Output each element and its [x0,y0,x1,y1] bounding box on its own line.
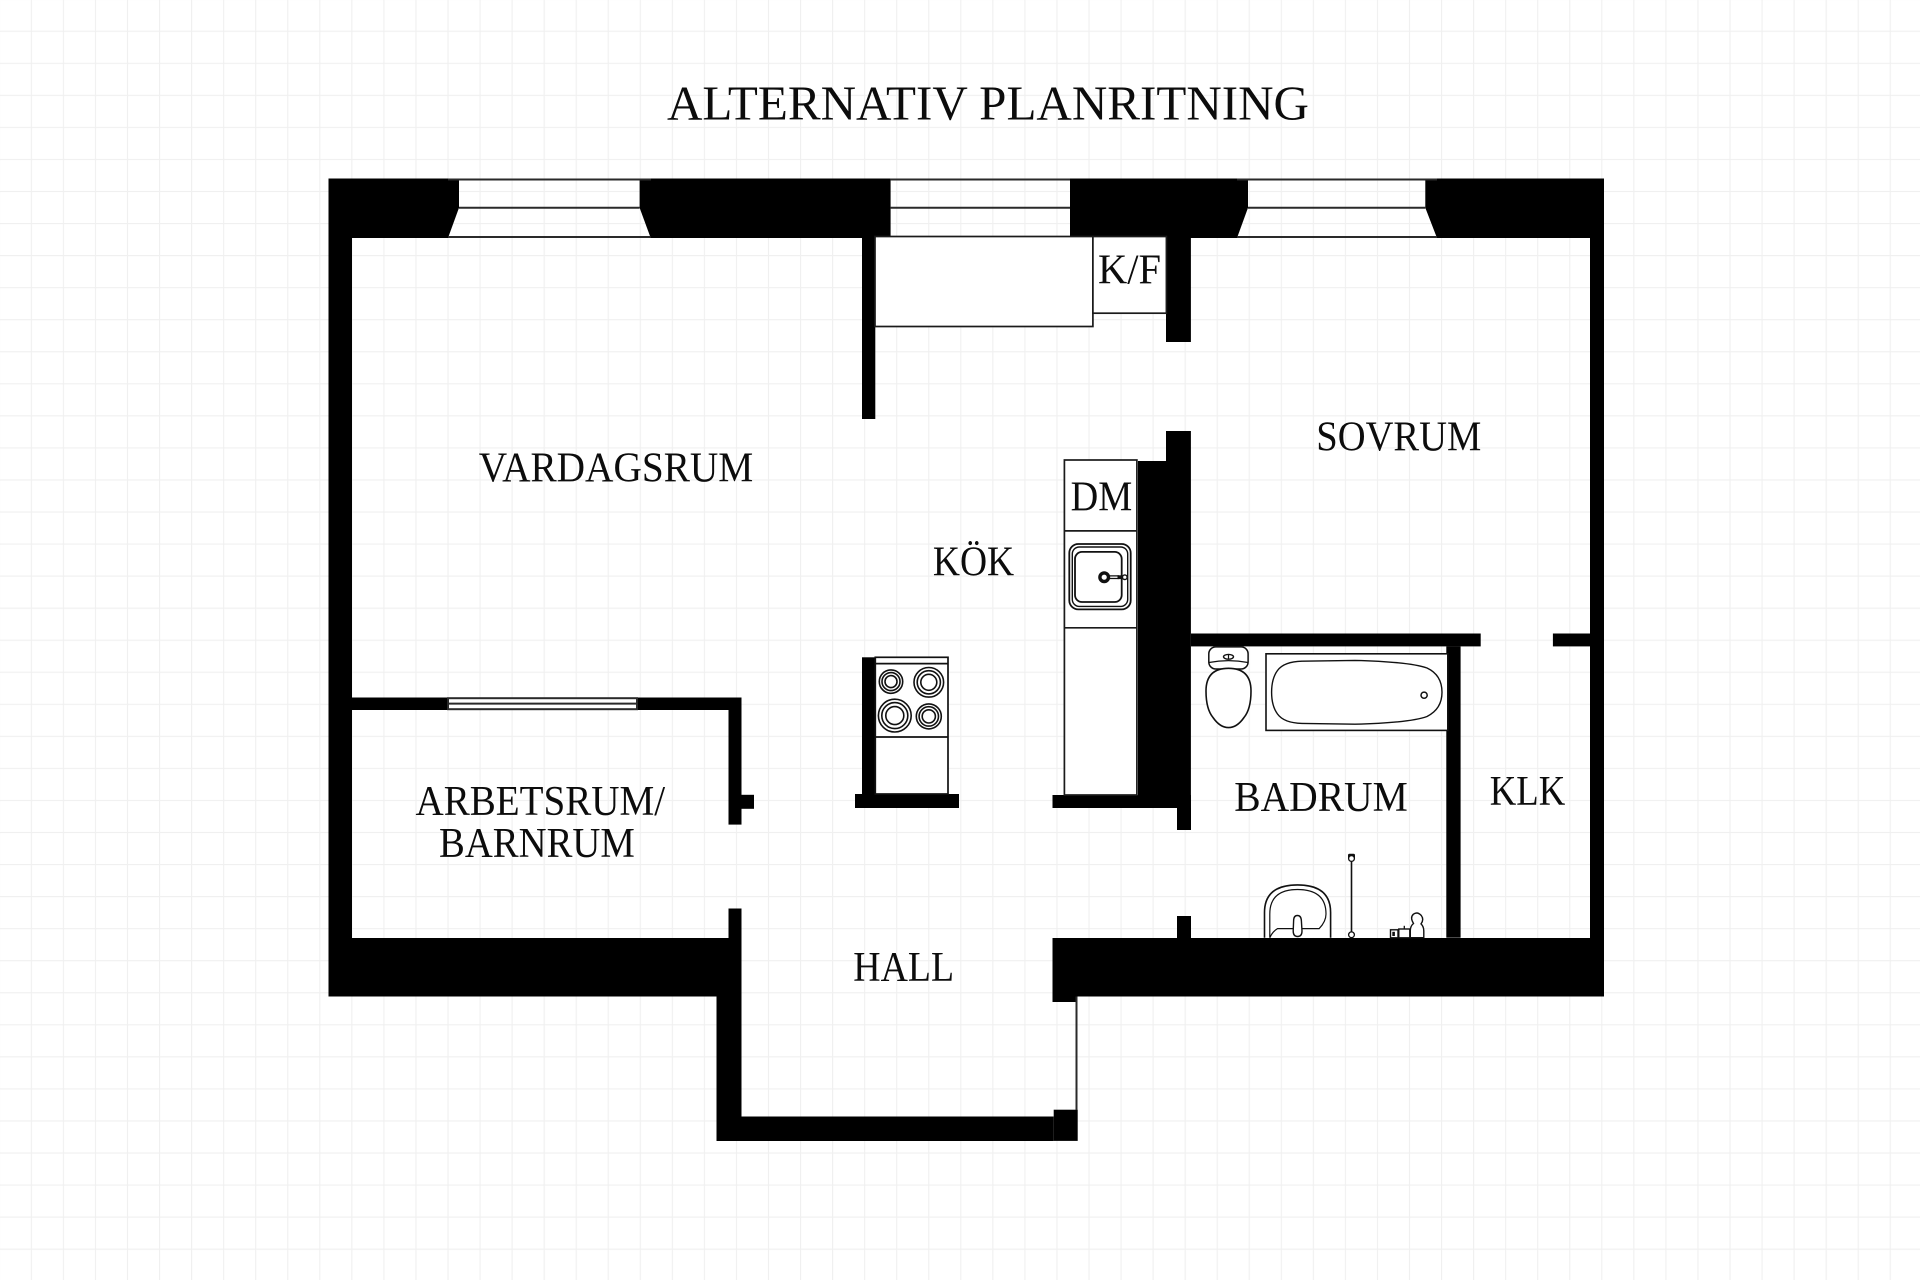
svg-text:BARNRUM: BARNRUM [439,821,635,867]
svg-text:VARDAGSRUM: VARDAGSRUM [479,445,754,491]
svg-text:K/F: K/F [1098,248,1161,294]
svg-text:BADRUM: BADRUM [1234,775,1408,821]
svg-text:HALL: HALL [853,945,954,991]
svg-text:ARBETSRUM/: ARBETSRUM/ [416,779,666,825]
svg-text:DM: DM [1071,475,1133,521]
svg-text:KLK: KLK [1490,769,1566,815]
svg-text:KÖK: KÖK [933,539,1014,585]
svg-text:ALTERNATIV PLANRITNING: ALTERNATIV PLANRITNING [667,75,1309,130]
svg-text:SOVRUM: SOVRUM [1316,415,1481,461]
